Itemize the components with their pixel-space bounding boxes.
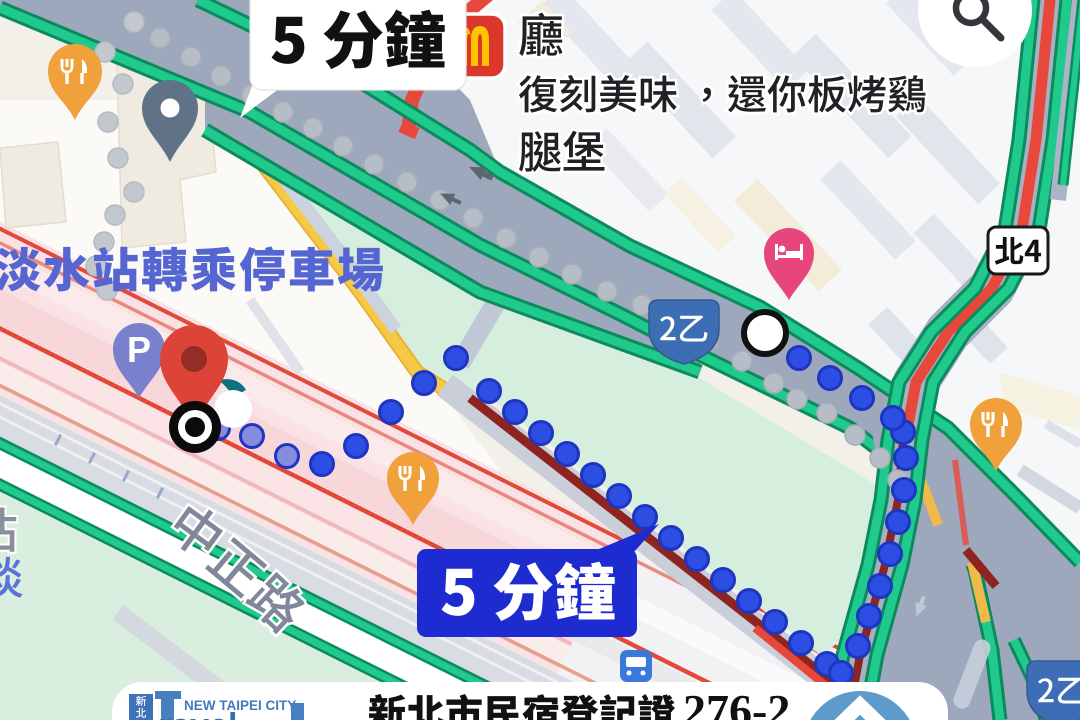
svg-text:P: P — [127, 329, 151, 370]
svg-text:ravel: ravel — [158, 707, 237, 720]
svg-text:276-2: 276-2 — [683, 685, 790, 720]
